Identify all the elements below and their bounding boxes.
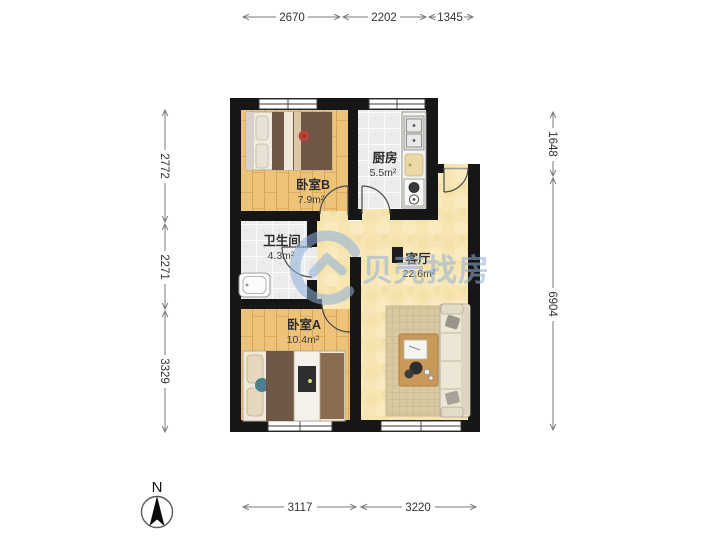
- cutting-board: [405, 154, 423, 176]
- compass: N: [142, 479, 173, 528]
- window-bedroom-b: [259, 99, 317, 109]
- dim-top-1: 2670: [243, 12, 340, 24]
- svg-text:3220: 3220: [405, 502, 431, 514]
- dim-left-3: 3329: [158, 311, 170, 432]
- dim-top-3: 1345: [429, 12, 473, 24]
- svg-text:2202: 2202: [371, 12, 397, 24]
- coffee-table: [399, 334, 438, 386]
- kitchen-label: 厨房: [372, 150, 397, 165]
- dim-left-2: 2271: [158, 224, 170, 309]
- window-bedroom-a: [268, 421, 332, 431]
- dim-top-2: 2202: [343, 12, 426, 24]
- dim-bottom-2: 3220: [361, 502, 476, 514]
- bedroom-b-area: 7.9m²: [298, 194, 325, 206]
- svg-text:1345: 1345: [437, 12, 463, 24]
- wall-kitchen-bottom-left: [348, 209, 362, 220]
- bedroom-a-area: 10.4m²: [287, 334, 320, 346]
- bed-bedroom-a: [243, 351, 345, 421]
- north-arrow-icon: [150, 496, 165, 526]
- wall-bathroom-bottom: [230, 299, 322, 309]
- bedroom-a-label: 卧室A: [287, 317, 321, 332]
- dim-bottom-1: 3117: [243, 502, 356, 514]
- wardrobe-tv: [294, 351, 320, 421]
- floorplan-screenshot: 卧室B 7.9m² 厨房 5.5m² 卫生间 4.3m² 客厅 22.6m² 卧…: [0, 0, 720, 540]
- dim-right-2: 6904: [546, 178, 558, 430]
- svg-text:2772: 2772: [158, 153, 170, 179]
- svg-text:3117: 3117: [288, 502, 313, 514]
- svg-text:3329: 3329: [158, 358, 170, 384]
- kitchen-sink: [404, 116, 424, 150]
- bathroom-label: 卫生间: [263, 233, 301, 248]
- wall-bedroomB-kitchen: [348, 110, 358, 220]
- bathtub: [239, 273, 270, 297]
- wall-kitchen-right: [426, 98, 438, 220]
- svg-text:2271: 2271: [158, 254, 170, 280]
- wall-left: [230, 98, 241, 432]
- wall-bedroomA-right: [350, 257, 361, 432]
- svg-text:6904: 6904: [546, 291, 558, 317]
- svg-text:2670: 2670: [279, 12, 305, 24]
- svg-text:1648: 1648: [546, 131, 558, 157]
- wall-entry-jamb: [426, 164, 444, 173]
- dim-left-1: 2772: [158, 110, 170, 222]
- watermark-text: 贝壳找房: [362, 253, 490, 288]
- bed-bedroom-b: [246, 112, 332, 170]
- dim-right-1: 1648: [546, 112, 558, 176]
- wall-kitchen-bottom-right: [390, 209, 438, 220]
- kitchen-area: 5.5m²: [370, 167, 397, 179]
- sofa: [440, 304, 470, 417]
- bedroom-b-label: 卧室B: [296, 177, 330, 192]
- kitchen-counter: [402, 112, 426, 208]
- floorplan-svg: 卧室B 7.9m² 厨房 5.5m² 卫生间 4.3m² 客厅 22.6m² 卧…: [0, 0, 720, 540]
- wall-bedroomB-bottom: [230, 211, 320, 221]
- window-kitchen: [369, 99, 425, 109]
- kitchen-stove: [404, 179, 424, 206]
- window-living-room: [381, 421, 461, 431]
- north-label: N: [152, 479, 163, 496]
